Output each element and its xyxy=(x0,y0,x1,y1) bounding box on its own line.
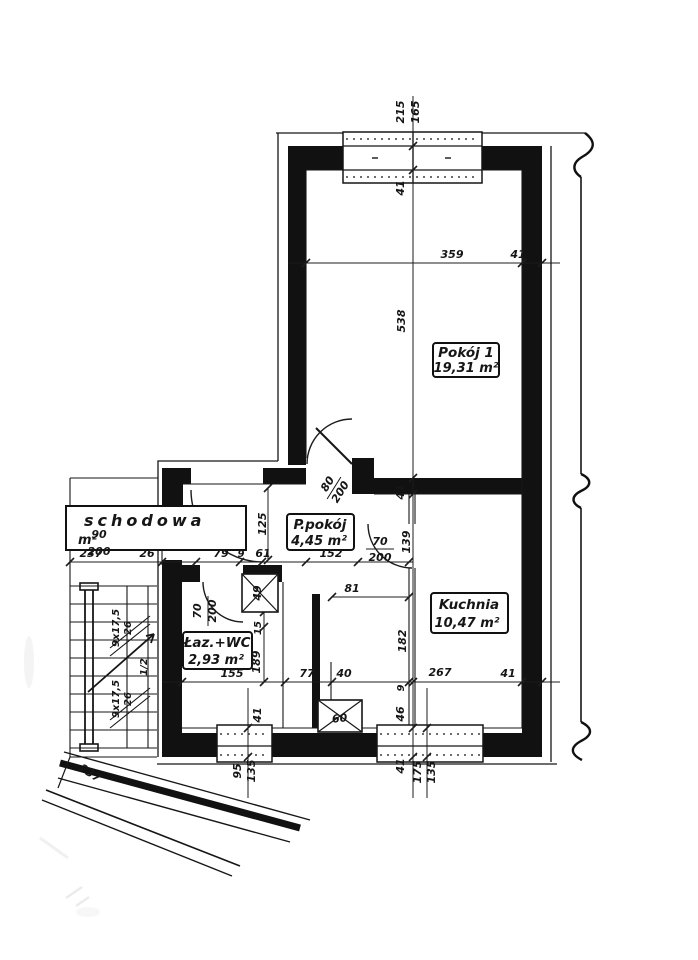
door-kuchnia-height: 200 xyxy=(369,551,392,564)
room-label-ppokoj: P.pokój 4,45 m² xyxy=(287,514,354,550)
dim-top-wall: 41 xyxy=(394,180,407,196)
window-top-width: 215 xyxy=(394,100,407,123)
room-area-pokoj1: 19,31 m² xyxy=(434,361,499,376)
dim-kuchnia-wall: 41 xyxy=(499,667,515,680)
dim-hall-height: 139 xyxy=(400,530,413,553)
dim-hall-width: 125 xyxy=(256,512,269,535)
dim-bottom-46: 46 xyxy=(394,706,407,723)
dim-laz-width: 155 xyxy=(221,667,244,680)
room-label-kuchnia: Kuchnia 10,47 m² xyxy=(431,593,508,633)
dim-entry-79: 79 xyxy=(213,547,229,560)
dim-hall-length: 152 xyxy=(320,547,343,560)
dim-room1-length: 538 xyxy=(395,309,408,332)
window-laz-height: 135 xyxy=(245,759,258,782)
dim-laz-wall: 15 xyxy=(253,621,264,635)
window-kuchnia-width: 175 xyxy=(411,760,424,783)
dim-diag-wall: 237 xyxy=(77,761,104,785)
window-kuchnia xyxy=(377,725,483,762)
stair-flight2-steps: 9x17,5 xyxy=(111,680,122,718)
dim-hall-bottom: 77 xyxy=(299,667,315,680)
dim-bottom-wall: 41 xyxy=(394,758,407,774)
dim-room1-wall: 41 xyxy=(509,248,525,261)
dim-shaft-gap: 40 xyxy=(335,667,352,680)
dim-mid-wall: 41 xyxy=(394,484,407,500)
dim-kuchnia-width: 267 xyxy=(429,666,452,679)
room-area-lazwc: 2,93 m² xyxy=(188,653,244,668)
door-kuchnia-width: 70 xyxy=(372,535,388,548)
room-area-kuchnia: 10,47 m² xyxy=(435,616,500,631)
stair-flight2-tread: 26 xyxy=(123,692,134,706)
room-name-lazwc: Łaz.+WC xyxy=(182,635,250,651)
stair-flight1-tread: 26 xyxy=(123,621,134,635)
dim-room1-width: 359 xyxy=(441,248,464,261)
dim-laz-window-wall: 41 xyxy=(251,707,264,723)
door-laz-width: 70 xyxy=(191,603,204,619)
dim-entry-61: 61 xyxy=(255,547,270,560)
room-name-pokoj1: Pokój 1 xyxy=(438,345,494,361)
scanned-floor-plan-page: Pokój 1 19,31 m² P.pokój 4,45 m² Kuchnia… xyxy=(0,0,698,960)
room-name-kuchnia: Kuchnia xyxy=(439,597,499,613)
room-label-pokoj1: Pokój 1 19,31 m² xyxy=(433,343,499,377)
dim-duct-81: 81 xyxy=(344,582,359,595)
floor-plan-drawing: Pokój 1 19,31 m² P.pokój 4,45 m² Kuchnia… xyxy=(0,0,698,960)
dim-stair-gap: 26 xyxy=(139,547,155,560)
window-kuchnia-height: 135 xyxy=(425,760,438,783)
dim-kuchnia-height: 182 xyxy=(396,629,409,652)
stair-flight1-steps: 9x17,5 xyxy=(111,609,122,647)
door-pokoj1-size-label: 80 200 xyxy=(315,470,353,507)
door-leaf-pokoj1 xyxy=(316,428,352,464)
door-laz-height: 200 xyxy=(206,599,219,622)
window-top-height: 165 xyxy=(409,100,422,123)
window-laz-width: 95 xyxy=(231,763,244,779)
dim-entry-9: 9 xyxy=(238,549,245,560)
stair-level-mark: 1/2 xyxy=(139,658,150,676)
shaft-hall-label: 60 xyxy=(331,711,348,726)
dim-laz-height: 189 xyxy=(250,650,263,673)
door-entry-width: 90 xyxy=(91,528,107,541)
room-label-lazwc: Łaz.+WC 2,93 m² xyxy=(182,632,252,669)
stair-handrail xyxy=(80,583,98,751)
dim-bottom-9: 9 xyxy=(396,684,407,691)
shaft-laz-label: 49 xyxy=(251,585,264,602)
balcony-outline xyxy=(573,133,593,760)
door-entry-height: 200 xyxy=(88,545,111,558)
room-name-ppokoj: P.pokój xyxy=(294,517,347,533)
